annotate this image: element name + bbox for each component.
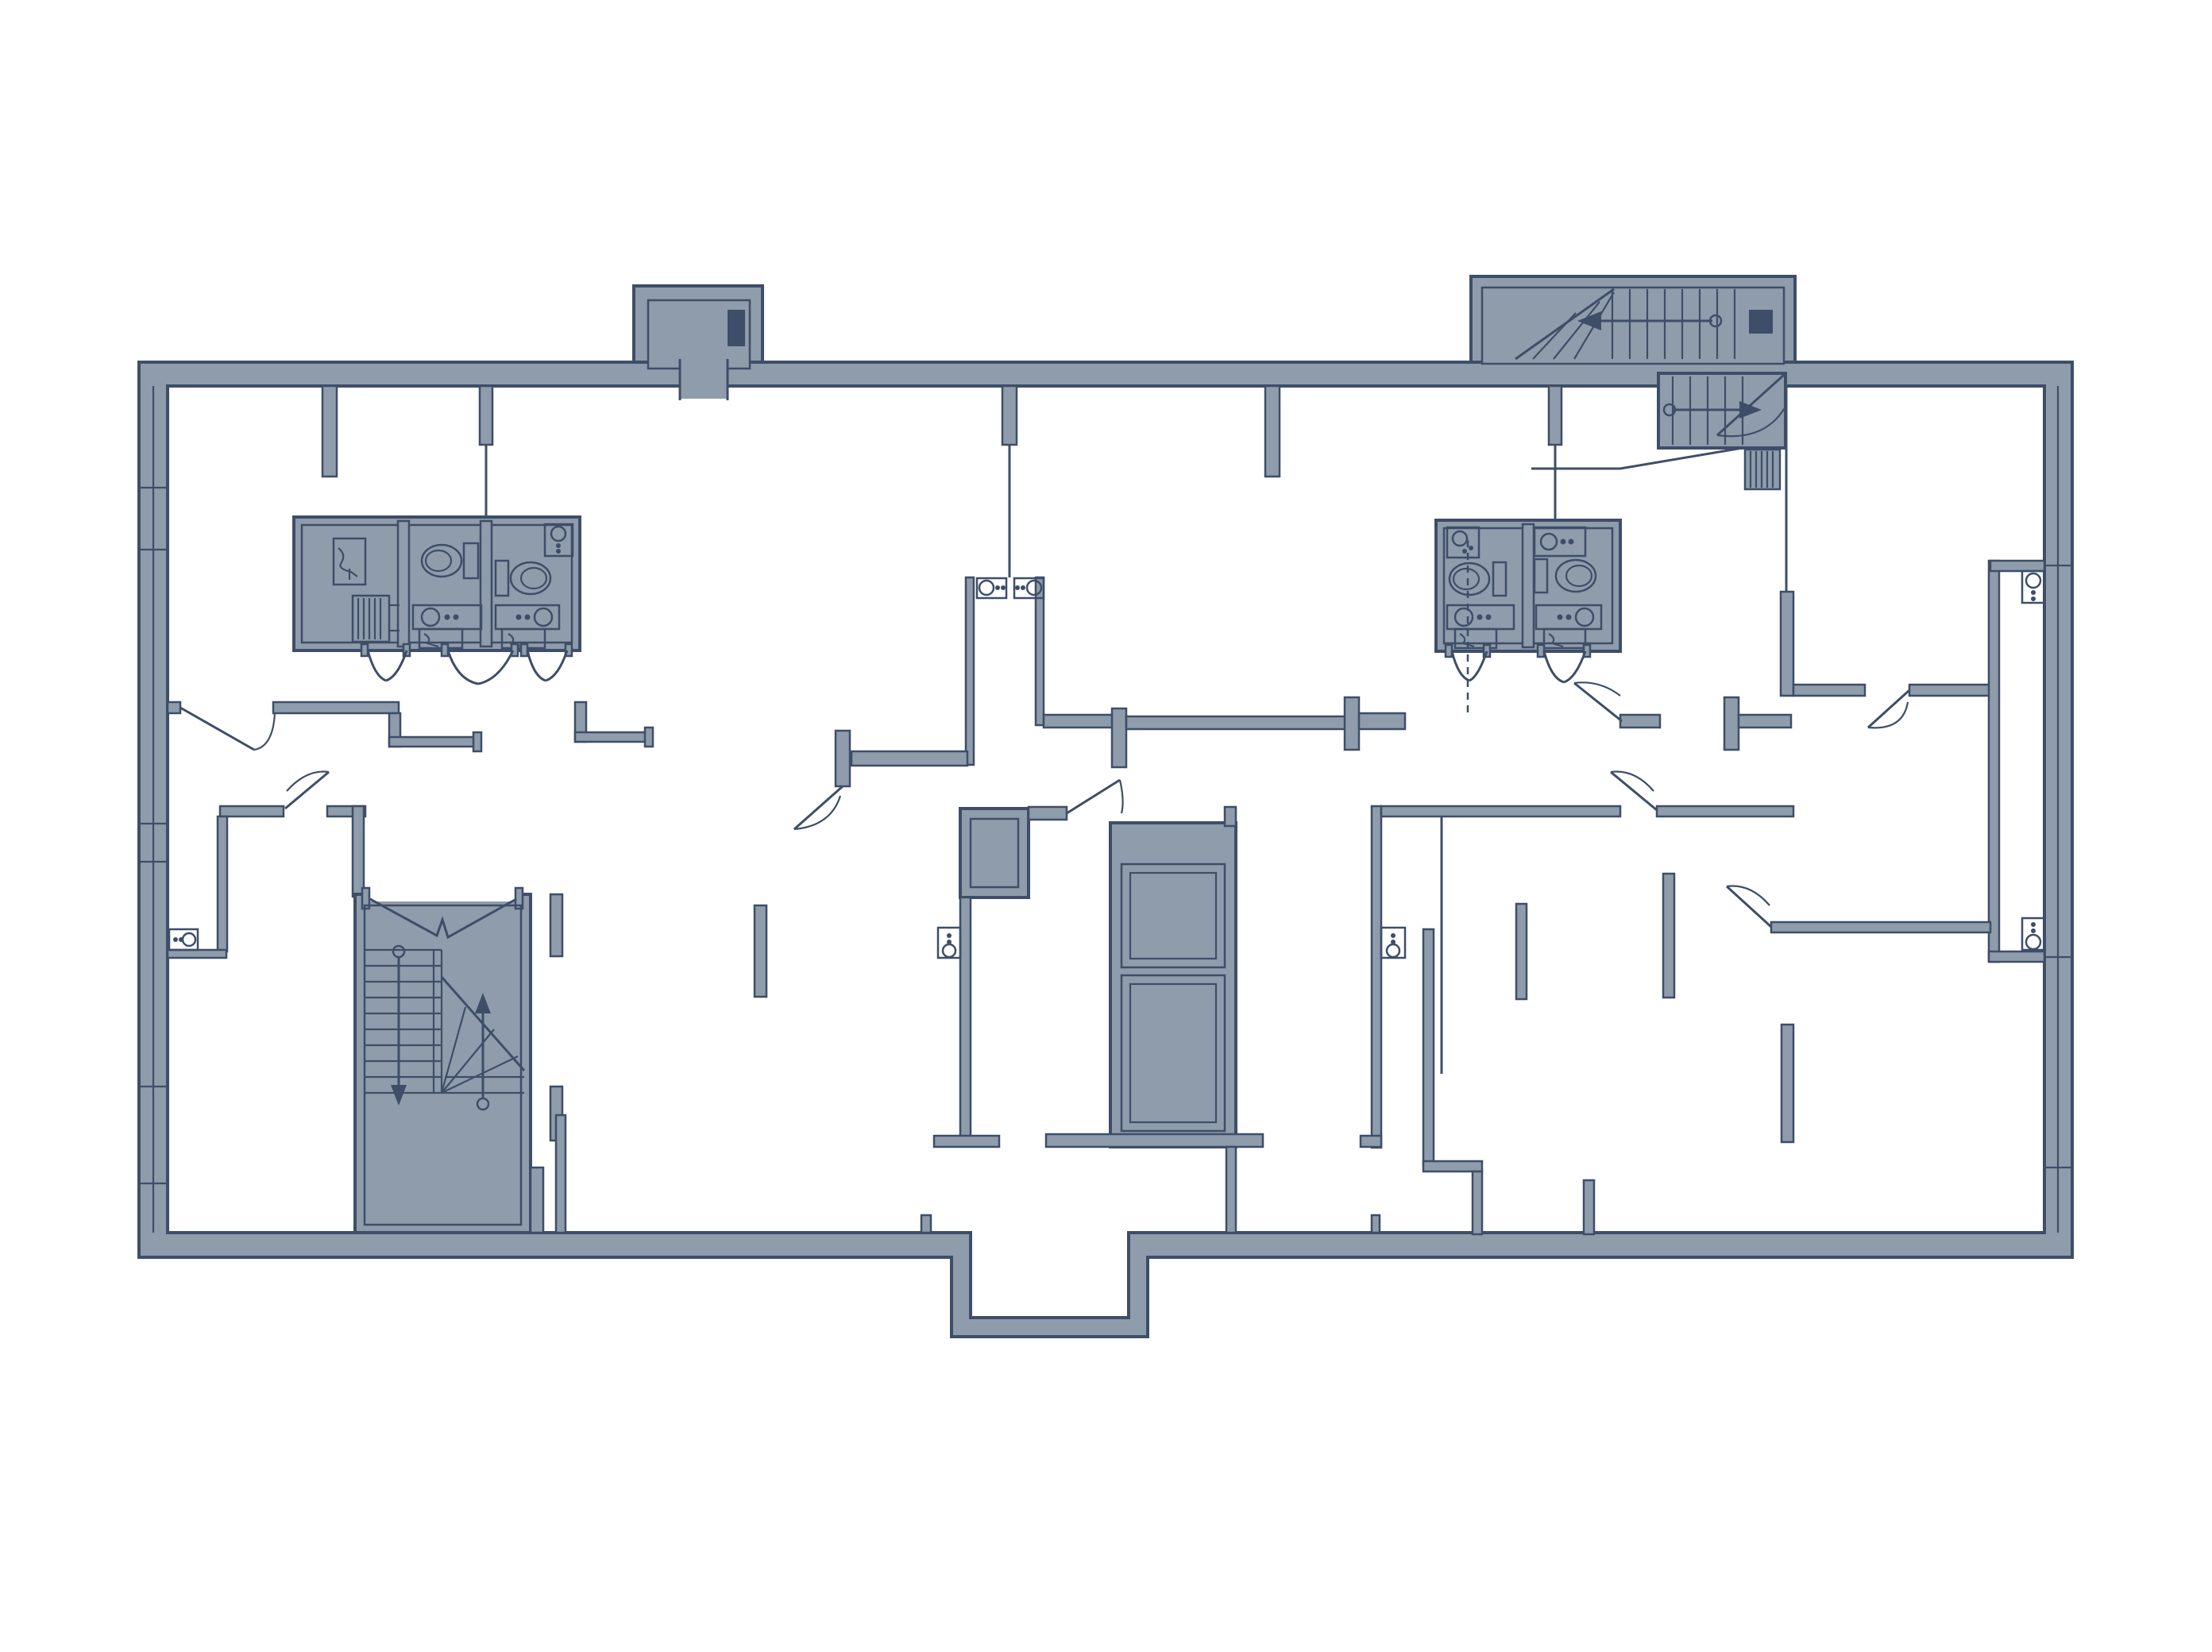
door-leaf [180, 708, 254, 750]
door-leaf [1574, 683, 1622, 721]
pilaster [1781, 592, 1793, 696]
east-apartment-walls [1361, 772, 1793, 1235]
pilaster [1112, 708, 1126, 767]
wardrobe-bar [1663, 874, 1674, 998]
door-leaf [285, 772, 329, 809]
door-leaves [527, 650, 567, 681]
door-leaves [448, 650, 513, 684]
door-leaf [1611, 772, 1657, 810]
east-bathroom-pod [1436, 520, 1620, 715]
far-east-apartment-walls [1727, 561, 2044, 1142]
corridor-walls [794, 682, 1791, 829]
south-west-stairwell [355, 888, 566, 1233]
wardrobe-bar [1782, 1025, 1793, 1142]
balcony-duct-icon [728, 310, 745, 346]
west-bathroom-pod [294, 517, 580, 684]
central-vent-shaft [966, 577, 1044, 765]
door-leaf [1067, 780, 1120, 813]
door-leaves [1452, 651, 1487, 681]
shaft-square-icon [1749, 310, 1773, 334]
floor-plan-page [0, 0, 2212, 1652]
pilaster [1724, 697, 1739, 750]
north-east-lower-flight [1531, 373, 1785, 489]
pilaster [1345, 697, 1359, 750]
floor-plan-drawing [0, 0, 2212, 1652]
central-elevator-core [921, 780, 1263, 1233]
door-leaf [1868, 690, 1909, 728]
north-east-stairwell-interior [1482, 288, 1784, 364]
door-leaf [1727, 886, 1771, 927]
wardrobe-bar [755, 905, 766, 997]
wardrobe-bar [556, 1115, 566, 1233]
door-leaves [1544, 651, 1585, 682]
wardrobe-bar [550, 894, 562, 956]
door-leaves [368, 650, 407, 681]
wardrobe-bar [1516, 904, 1527, 999]
leader-line [1531, 448, 1743, 469]
pilaster [836, 731, 850, 786]
